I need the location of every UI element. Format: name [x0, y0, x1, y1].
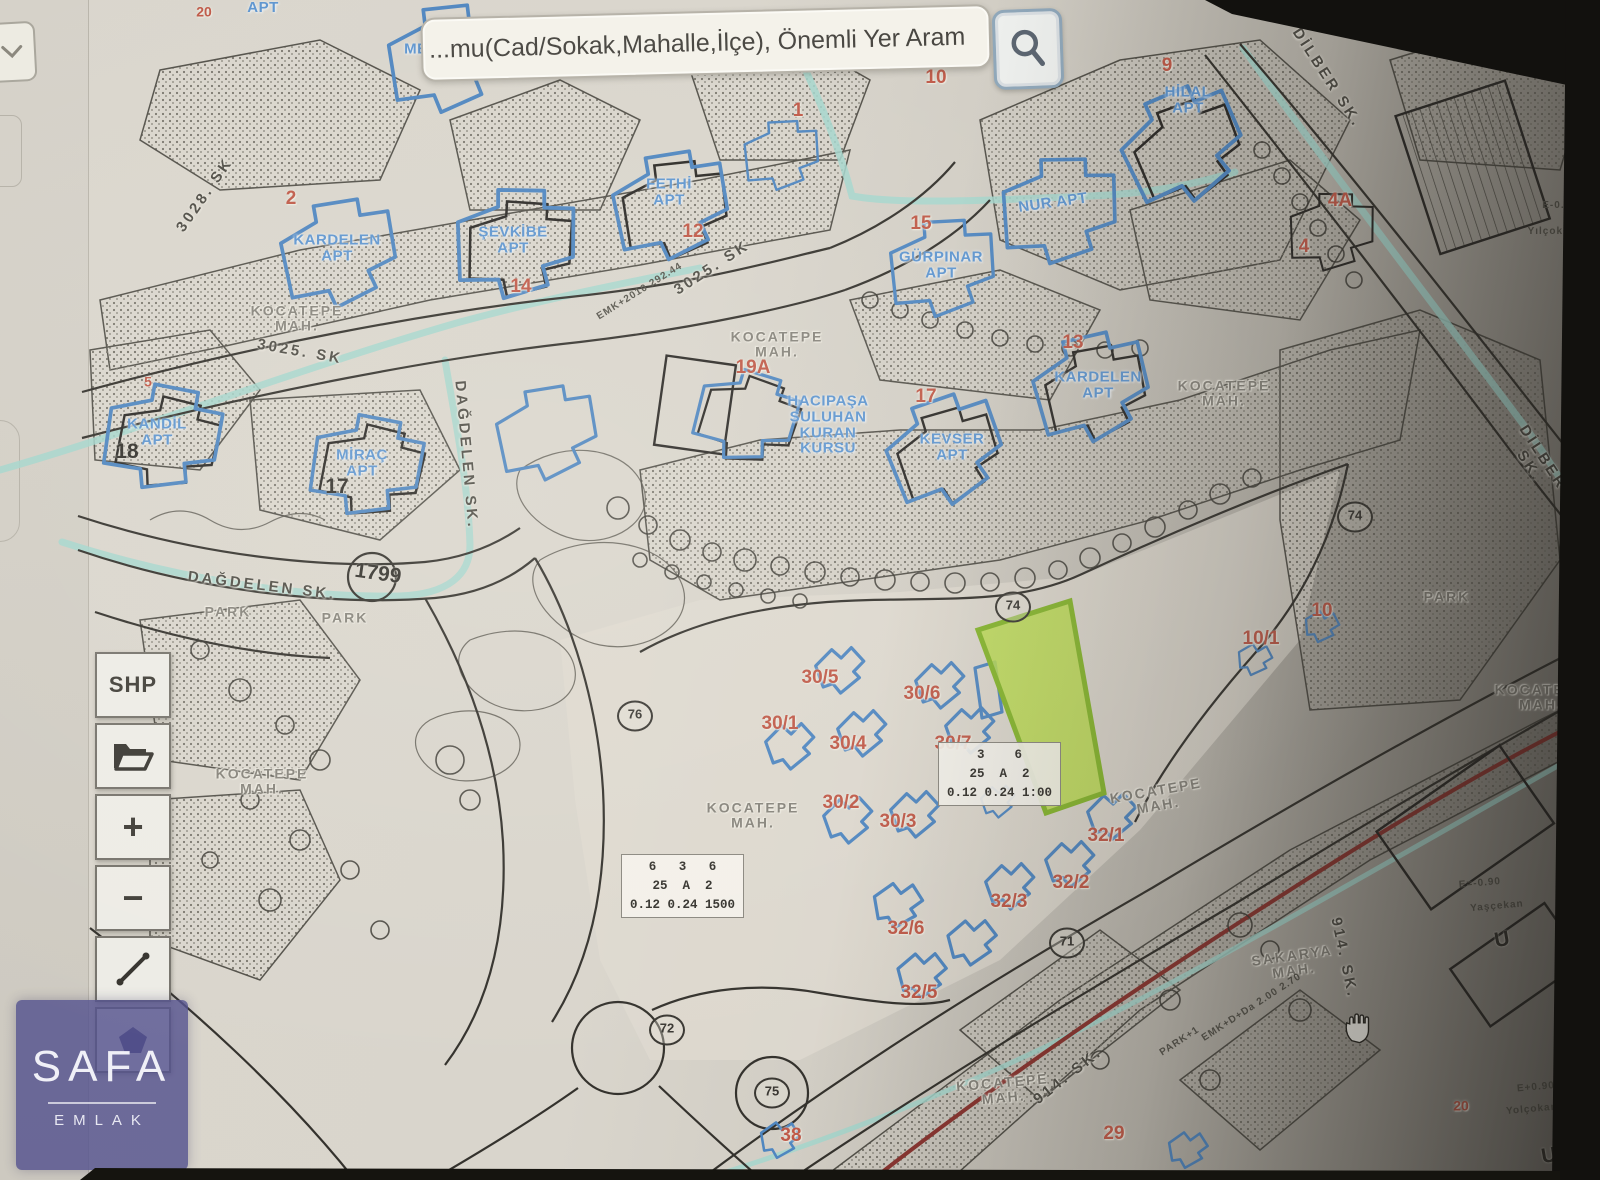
map-label: DAĞDELEN SK. — [452, 380, 481, 530]
map-label: U — [1493, 928, 1512, 952]
folder-icon — [112, 740, 154, 772]
map-label: E-0.90 — [1542, 201, 1577, 212]
map-label: 30/2 — [823, 793, 860, 813]
map-label: HACIPAŞA SULUHAN KURAN KURSU — [787, 394, 868, 457]
map-label: 10 — [1311, 601, 1332, 621]
map-label: NUR APT — [1017, 190, 1088, 215]
map-label: 3025. SK — [256, 337, 344, 368]
zoom-out-button[interactable]: − — [95, 865, 171, 931]
map-label: 30/3 — [880, 812, 917, 832]
map-label: PARK — [1424, 590, 1471, 605]
map-label: 74 — [1337, 502, 1373, 533]
watermark-title: SAFA — [32, 1042, 173, 1092]
map-label: GÜRPINAR APT — [899, 249, 983, 281]
map-label: 32/3 — [991, 892, 1028, 912]
map-label: 4 — [1299, 237, 1310, 257]
zoom-in-button[interactable]: + — [95, 794, 171, 860]
map-label: KOCATEPE MAH. — [707, 800, 800, 829]
map-label: 32/2 — [1053, 873, 1090, 893]
map-label: PARK — [205, 605, 252, 620]
parcel-legend-box: 3 6 25 A 2 0.12 0.24 1:00 — [938, 742, 1061, 806]
map-label: PARK — [322, 611, 369, 626]
magnifier-icon — [1007, 26, 1049, 71]
map-label: KOCATEPE MAH. — [251, 303, 344, 332]
watermark-divider — [48, 1102, 156, 1104]
map-label: Yılçok+4 — [1528, 227, 1577, 238]
collapse-panel-button[interactable] — [0, 21, 38, 83]
map-label: KANDİL APT — [127, 416, 187, 448]
map-label: 5 — [144, 375, 152, 390]
watermark-subtitle: EMLAK — [54, 1112, 150, 1129]
map-label: 9 — [1162, 56, 1173, 76]
chevron-down-icon — [1, 44, 24, 59]
map-label: 4A — [1328, 191, 1352, 211]
map-label: DAĞDELEN SK. — [187, 569, 337, 603]
map-label: HİLAL APT — [1165, 84, 1212, 116]
map-label: EMK+2010 292.44 — [595, 261, 684, 322]
map-label: 1799 — [353, 560, 402, 588]
map-label: 3025. SK — [671, 238, 752, 298]
map-label: E+0.90 — [1517, 1081, 1556, 1095]
map-label: 17 — [325, 476, 348, 498]
screenshot-photo: 3028. SK3025. SK3025. SKDAĞDELEN SK.DAĞD… — [0, 0, 1600, 1180]
map-label: 30/6 — [904, 684, 941, 704]
map-label: 18 — [115, 441, 138, 463]
map-label: APT — [247, 0, 279, 16]
map-label: Yaşçekan — [1470, 899, 1524, 914]
map-label: PARK+1 — [1158, 1025, 1201, 1058]
map-label: 13 — [1062, 333, 1083, 353]
map-label: EMK+D+Da 2.00 2.70 — [1200, 972, 1303, 1044]
map-label: 17 — [915, 387, 936, 407]
map-label: ŞEVKİBE APT — [478, 224, 547, 256]
measure-button[interactable] — [95, 936, 171, 1002]
shp-layer-button[interactable]: SHP — [95, 652, 171, 718]
map-label: 32/5 — [901, 983, 938, 1003]
map-label: DİLBER SK. — [1503, 422, 1570, 501]
map-label: 15 — [910, 214, 931, 234]
map-label: 1 — [793, 101, 804, 121]
map-label: 914. SK. — [1031, 1044, 1106, 1107]
map-label: MİRAÇ APT — [336, 447, 388, 479]
ruler-icon — [114, 950, 152, 988]
map-label: 14 — [510, 277, 531, 297]
map-label: 71 — [1049, 928, 1085, 959]
map-label: 3028. SK — [174, 155, 237, 235]
map-label: 38 — [780, 1126, 801, 1146]
map-label: KARDELEN APT — [293, 232, 380, 264]
map-label: DİLBER SK. — [1289, 25, 1365, 130]
map-label: KOCATEPE MAH. — [1495, 682, 1588, 711]
map-label: 74 — [995, 592, 1031, 623]
map-label: 12 — [1556, 531, 1583, 559]
map-label: KOCATEPE MAH. — [1178, 378, 1271, 407]
map-label: KOCATEPE MAH. — [216, 766, 309, 795]
map-label: 19A — [736, 358, 771, 378]
map-label: Yolçokan — [1506, 1103, 1558, 1118]
map-label: 75 — [754, 1078, 790, 1109]
map-label: 20 — [196, 5, 212, 20]
map-label: 10 — [925, 68, 946, 88]
map-label: 30/4 — [830, 734, 867, 754]
map-label: KARDELEN APT — [1054, 369, 1141, 401]
map-label: 20 — [1453, 1099, 1469, 1114]
map-label: KEVSER APT — [920, 431, 985, 463]
map-label: 32/1 — [1088, 826, 1125, 846]
map-label: 30/5 — [802, 668, 839, 688]
map-label: 12 — [682, 222, 703, 242]
open-layer-button[interactable] — [95, 723, 171, 789]
map-label: 72 — [649, 1015, 685, 1046]
map-label: 2 — [286, 189, 297, 209]
map-label: 76 — [617, 701, 653, 732]
parcel-legend-box: 6 3 6 25 A 2 0.12 0.24 1500 — [621, 854, 744, 918]
map-label: KOCATEPE MAH. — [731, 329, 824, 358]
map-label: U — [1540, 1144, 1559, 1168]
safa-emlak-watermark: SAFA EMLAK — [16, 1000, 188, 1170]
map-label: 10/1 — [1243, 629, 1280, 649]
map-label: E=-0.90 — [1458, 877, 1501, 891]
map-labels-layer: 3028. SK3025. SK3025. SKDAĞDELEN SK.DAĞD… — [0, 0, 1600, 1180]
map-label: 30/1 — [762, 714, 799, 734]
map-label: KOCATEPE MAH. — [956, 1071, 1051, 1108]
hand-cursor — [1342, 1012, 1374, 1055]
map-label: 32/6 — [888, 919, 925, 939]
search-button[interactable] — [992, 8, 1065, 90]
search-input-value: ...mu(Cad/Sokak,Mahalle,İlçe), Önemli Ye… — [429, 22, 966, 64]
map-label: FETHİ APT — [646, 176, 692, 208]
map-label: KOCATEPE MAH. — [1109, 775, 1205, 820]
map-label: 29 — [1103, 1124, 1124, 1144]
map-label: 914. SK. — [1328, 916, 1361, 1000]
map-label: SAKARYA MAH. — [1251, 943, 1336, 983]
